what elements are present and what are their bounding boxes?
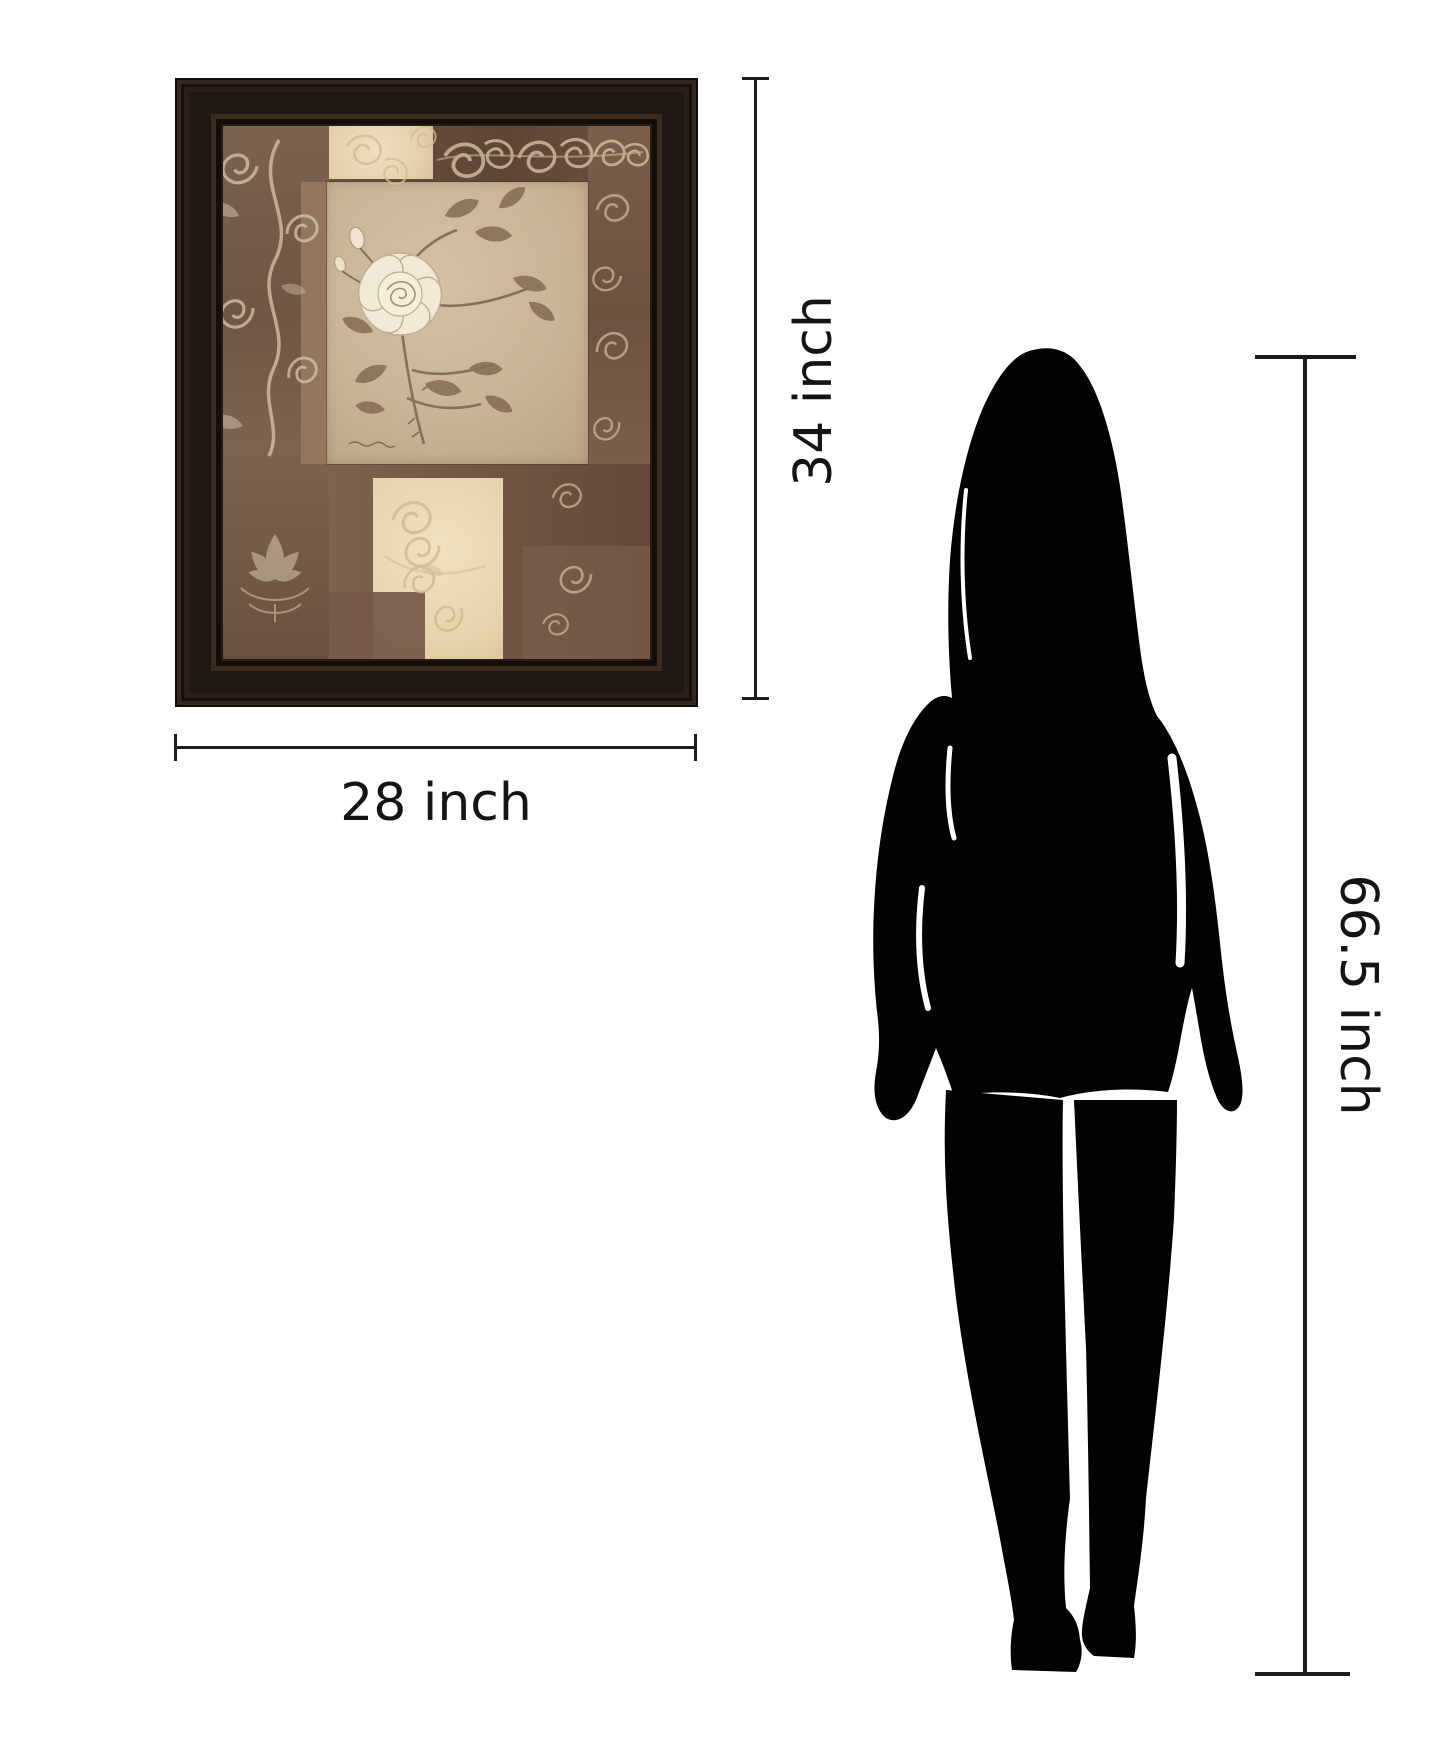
figure-height-label: 66.5 inch	[1327, 863, 1389, 1127]
scroll-ornament-top-band	[437, 136, 650, 177]
artist-signature	[349, 442, 395, 447]
woman-silhouette	[850, 348, 1250, 1683]
damask-cream-top	[347, 126, 439, 188]
scroll-ornament-right-column	[542, 192, 632, 637]
art-ornament-overlay	[223, 126, 650, 659]
rose-illustration	[333, 183, 558, 447]
frame-height-bottom-tick	[742, 697, 769, 700]
scroll-ornament-left-vine	[223, 140, 322, 456]
damask-cream-bottom	[385, 498, 485, 636]
artwork-canvas	[223, 126, 650, 659]
frame-height-top-tick	[742, 77, 769, 80]
frame-width-left-tick	[174, 734, 177, 761]
damask-medallion	[241, 536, 309, 622]
frame-width-right-tick	[694, 734, 697, 761]
frame-height-dimension-line	[754, 78, 757, 700]
figure-height-dimension-line	[1303, 357, 1307, 1676]
product-dimension-diagram: 34 inch 28 inch 66.5 inch	[0, 0, 1445, 1761]
frame-height-label: 34 inch	[783, 271, 845, 511]
figure-height-bottom-tick	[1255, 1672, 1350, 1676]
silhouette-right-leg	[1074, 1100, 1177, 1658]
silhouette-left-leg	[945, 1090, 1082, 1672]
frame-width-dimension-line	[175, 746, 697, 749]
picture-frame	[175, 78, 698, 707]
frame-width-label: 28 inch	[316, 772, 556, 834]
figure-height-top-tick	[1255, 355, 1356, 359]
